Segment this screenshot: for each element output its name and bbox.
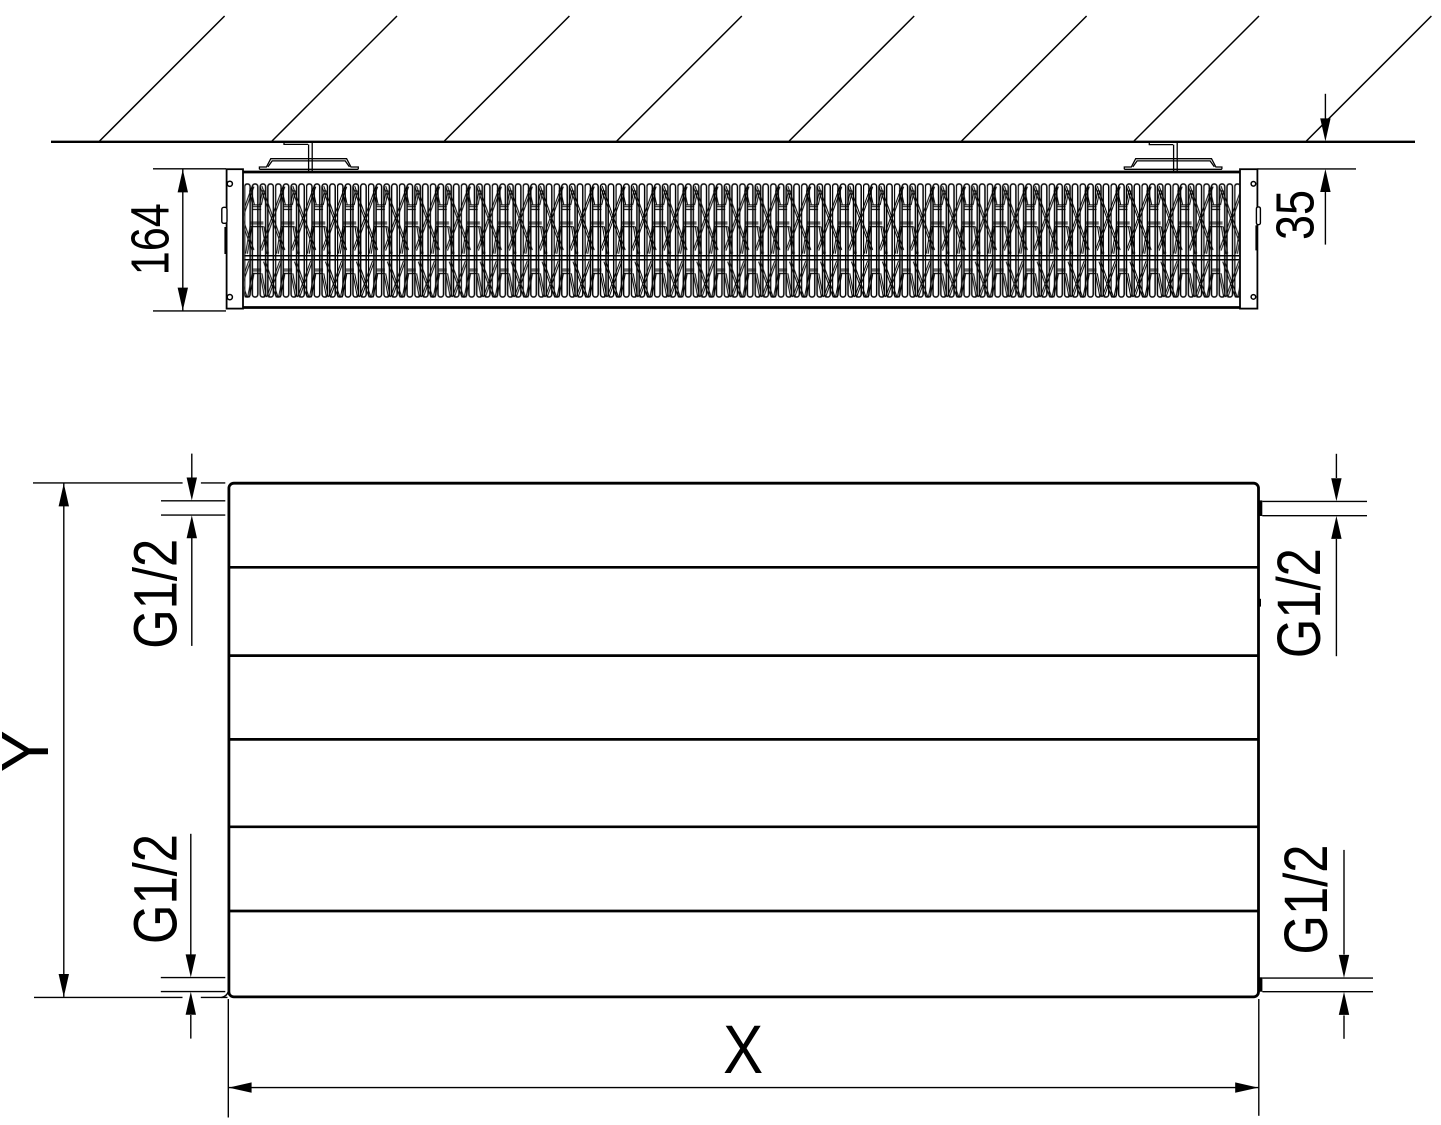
- svg-text:X: X: [723, 1011, 763, 1088]
- svg-text:G1/2: G1/2: [1272, 845, 1340, 955]
- svg-text:G1/2: G1/2: [121, 834, 189, 944]
- svg-text:35: 35: [1266, 190, 1326, 240]
- svg-text:G1/2: G1/2: [121, 539, 189, 649]
- svg-text:164: 164: [121, 203, 181, 275]
- svg-text:G1/2: G1/2: [1265, 548, 1333, 658]
- svg-text:Y: Y: [0, 730, 63, 772]
